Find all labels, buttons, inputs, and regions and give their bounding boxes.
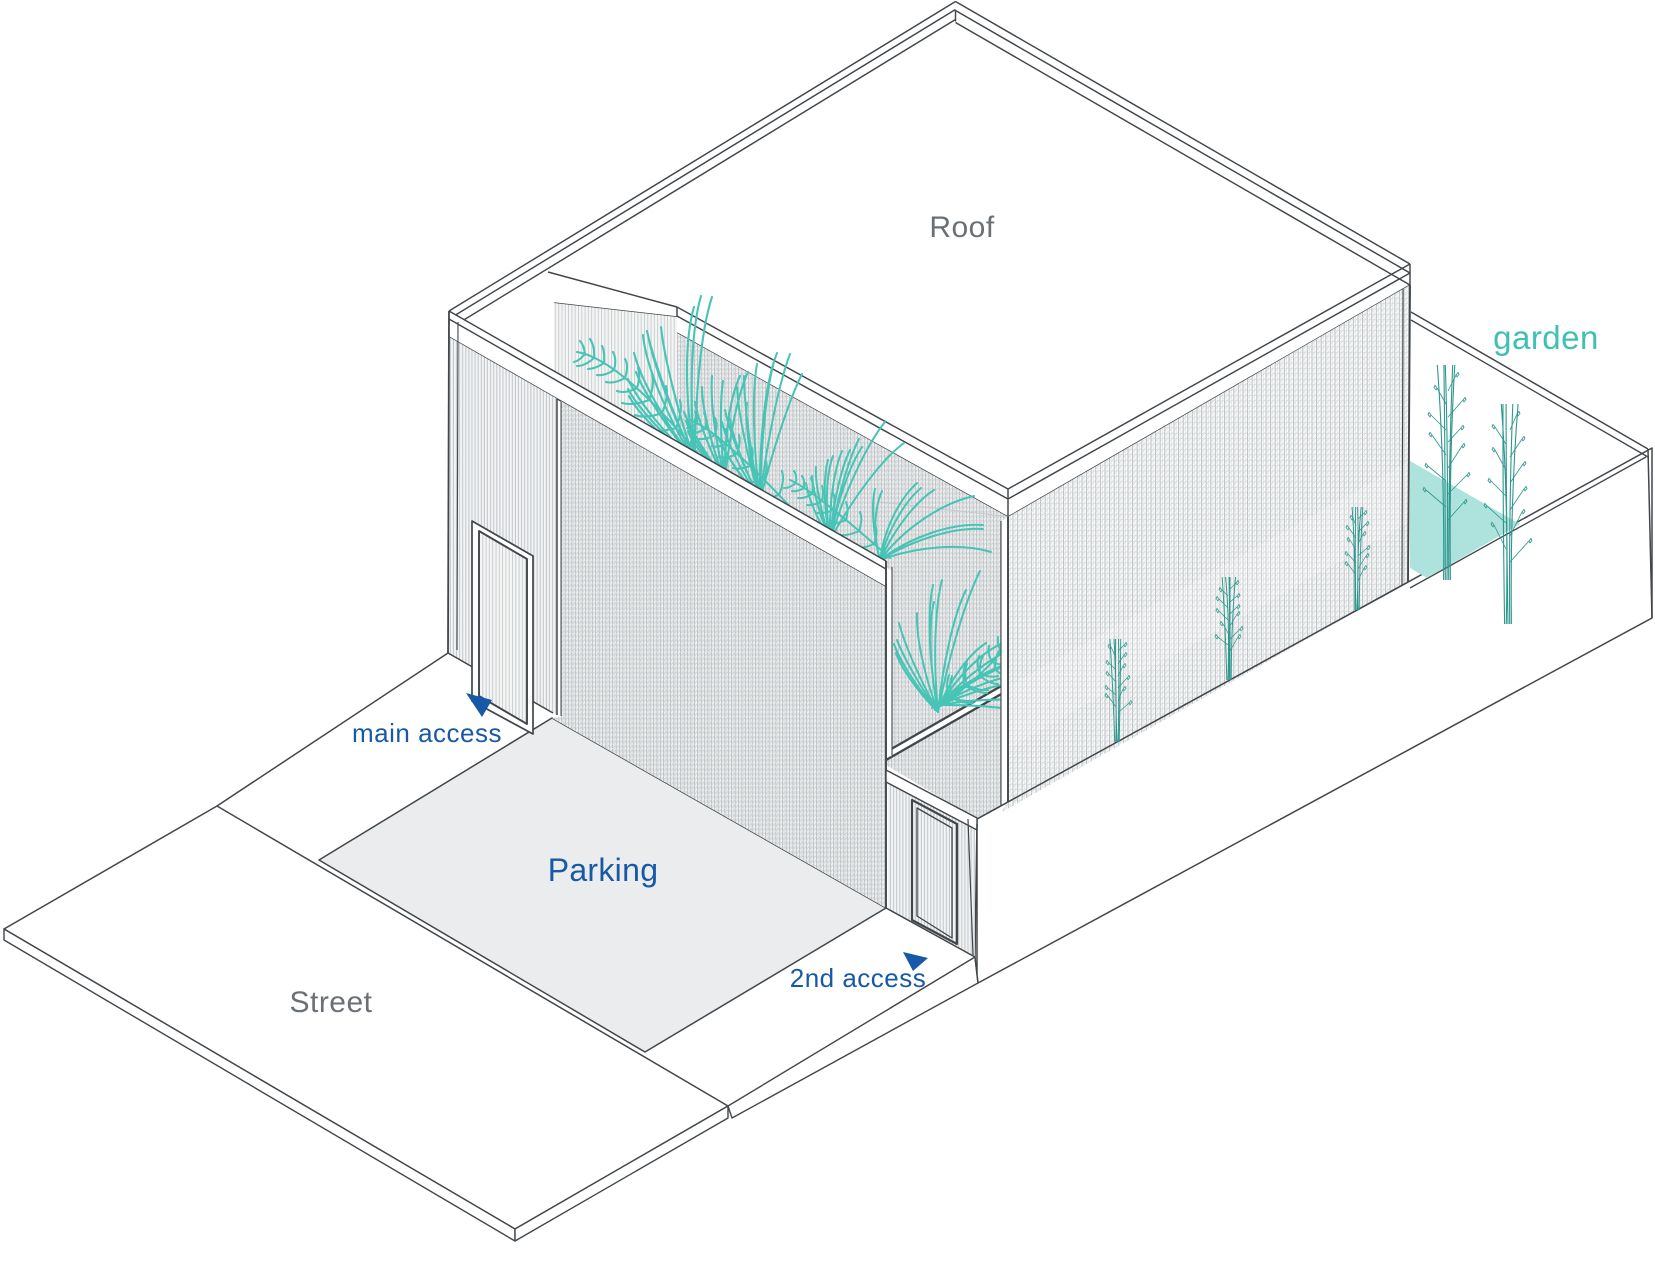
svg-text:Roof: Roof [929, 211, 995, 244]
svg-text:garden: garden [1493, 319, 1599, 356]
svg-text:Parking: Parking [548, 852, 659, 888]
svg-text:main access: main access [352, 718, 502, 748]
svg-text:Street: Street [289, 986, 372, 1019]
svg-text:2nd access: 2nd access [790, 963, 927, 993]
